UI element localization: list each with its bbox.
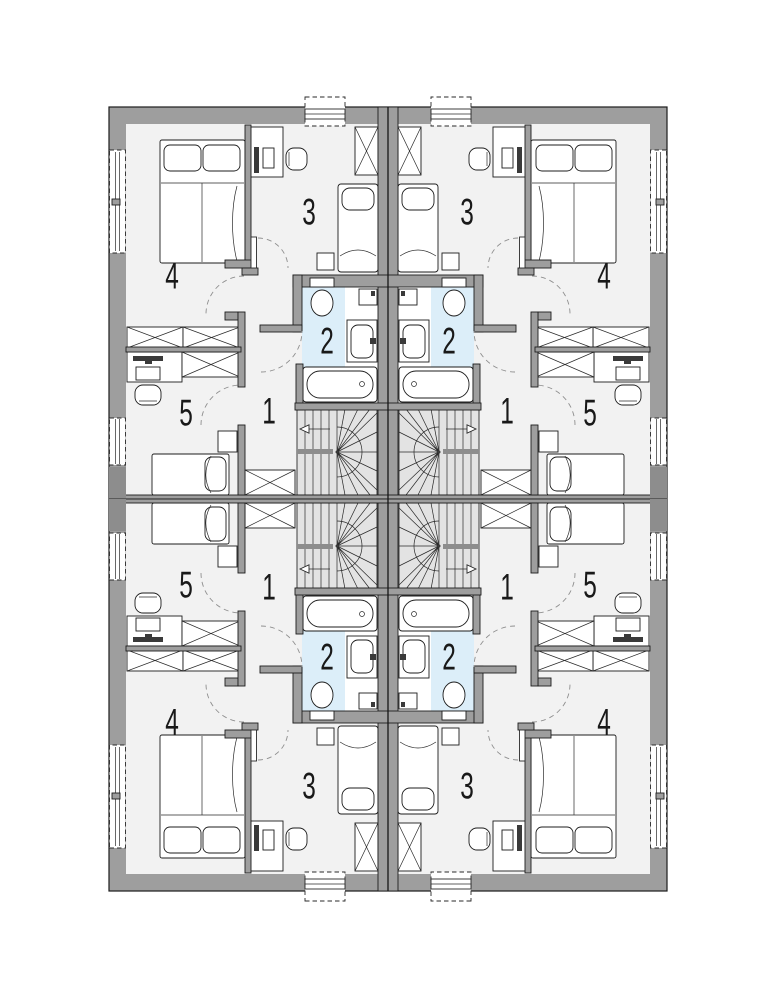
room-label-1: 1 xyxy=(262,390,276,431)
room-label-1: 1 xyxy=(262,566,276,607)
room-label-1: 1 xyxy=(500,566,514,607)
room-label-3: 3 xyxy=(460,765,474,806)
floor-plan-page: 1 2 3 4 5 1 2 3 4 5 1 2 3 4 5 1 2 3 4 5 xyxy=(0,0,776,1000)
room-label-5: 5 xyxy=(179,564,193,605)
room-label-3: 3 xyxy=(302,765,316,806)
room-label-2: 2 xyxy=(442,320,456,361)
room-label-2: 2 xyxy=(320,636,334,677)
room-label-5: 5 xyxy=(583,392,597,433)
room-label-1: 1 xyxy=(500,390,514,431)
unit-bottom-left xyxy=(109,499,388,901)
room-label-2: 2 xyxy=(442,636,456,677)
room-label-2: 2 xyxy=(320,320,334,361)
room-label-4: 4 xyxy=(597,255,611,296)
room-label-4: 4 xyxy=(165,701,179,742)
floor-plan-svg: 1 2 3 4 5 1 2 3 4 5 1 2 3 4 5 1 2 3 4 5 xyxy=(0,0,776,1000)
room-label-3: 3 xyxy=(460,191,474,232)
room-label-3: 3 xyxy=(302,191,316,232)
unit-top-right xyxy=(388,97,667,499)
room-label-4: 4 xyxy=(597,701,611,742)
unit-top-left xyxy=(109,97,388,499)
room-label-4: 4 xyxy=(165,255,179,296)
unit-bottom-right xyxy=(388,499,667,901)
room-label-5: 5 xyxy=(179,392,193,433)
room-label-5: 5 xyxy=(583,564,597,605)
